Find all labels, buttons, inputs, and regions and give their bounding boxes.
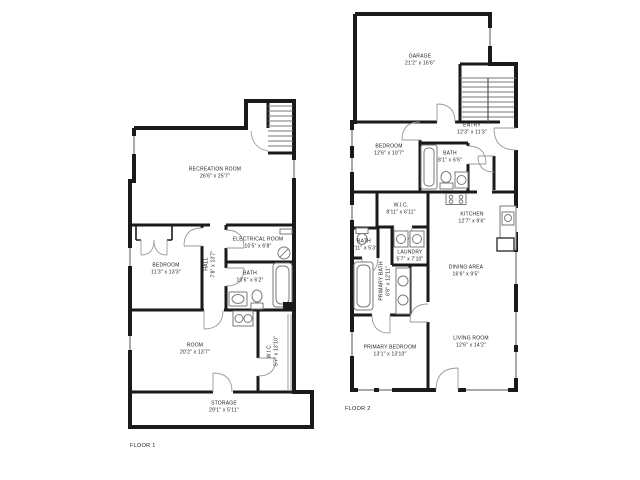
floor2-title: FLOOR 2 [345,406,371,412]
room-label-primary-bath: PRIMARY BATH 6'8" x 12'11" [378,261,392,300]
primary-vanity-icon [396,268,410,314]
wic1-rod-icon [288,314,291,390]
floor2-interior-walls [352,64,516,390]
room-label-entry: ENTRY 12'3" x 11'3" [457,122,487,136]
room-label-laundry: LAUNDRY 5'7" x 7'10" [396,249,423,263]
room-label-bath-small: BATH 3'11" x 5'3" [351,238,378,252]
room-label-bedroom1: BEDROOM 11'3" x 13'3" [151,262,181,276]
room-label-wic1: W.I.C. 5'7" x 13'10" [266,336,280,366]
room-label-room: ROOM 20'2" x 13'7" [180,342,210,356]
room-label-dining: DINING AREA 16'6" x 9'5" [449,264,483,278]
room-label-electrical: ELECTRICAL ROOM 10'5" x 6'8" [233,236,284,250]
room-label-bath1: BATH 10'6" x 6'2" [236,270,263,284]
floor2-stairs-icon [460,78,516,122]
room-label-recreation: RECREATION ROOM 26'6" x 25'7" [189,166,241,180]
electrical-panel-icon [280,229,292,234]
room-label-living: LIVING ROOM 12'6" x 14'2" [453,335,489,349]
room-label-wic2: W.I.C. 8'11" x 6'11" [386,202,415,216]
room-label-bedroom2: BEDROOM 12'6" x 10'7" [374,143,404,157]
bath2-toilet-icon [441,172,451,183]
room-label-kitchen: KITCHEN 12'7" x 9'6" [458,211,485,225]
floorplan-page: RECREATION ROOM 26'6" x 25'7" BEDROOM 11… [0,0,640,480]
floor2-plan [352,14,516,390]
room-label-bath2: BATH 8'1" x 6'6" [438,150,462,164]
floor1-closet-walls [136,225,172,240]
stove-icon [446,194,466,205]
bath1-toilet-icon [252,290,262,302]
room-label-primary-bedroom: PRIMARY BEDROOM 13'1" x 13'10" [364,344,417,358]
fridge-icon [497,238,514,251]
floor1-title: FLOOR 1 [130,443,156,449]
floor1-stairs-icon [268,106,293,146]
room-label-garage: GARAGE 21'2" x 16'6" [405,53,435,67]
room-label-hall: HALL 7'8" x 13'7" [203,250,217,277]
floorplan-canvas [0,0,640,480]
room-label-storage: STORAGE 29'1" x 5'11" [209,400,239,414]
